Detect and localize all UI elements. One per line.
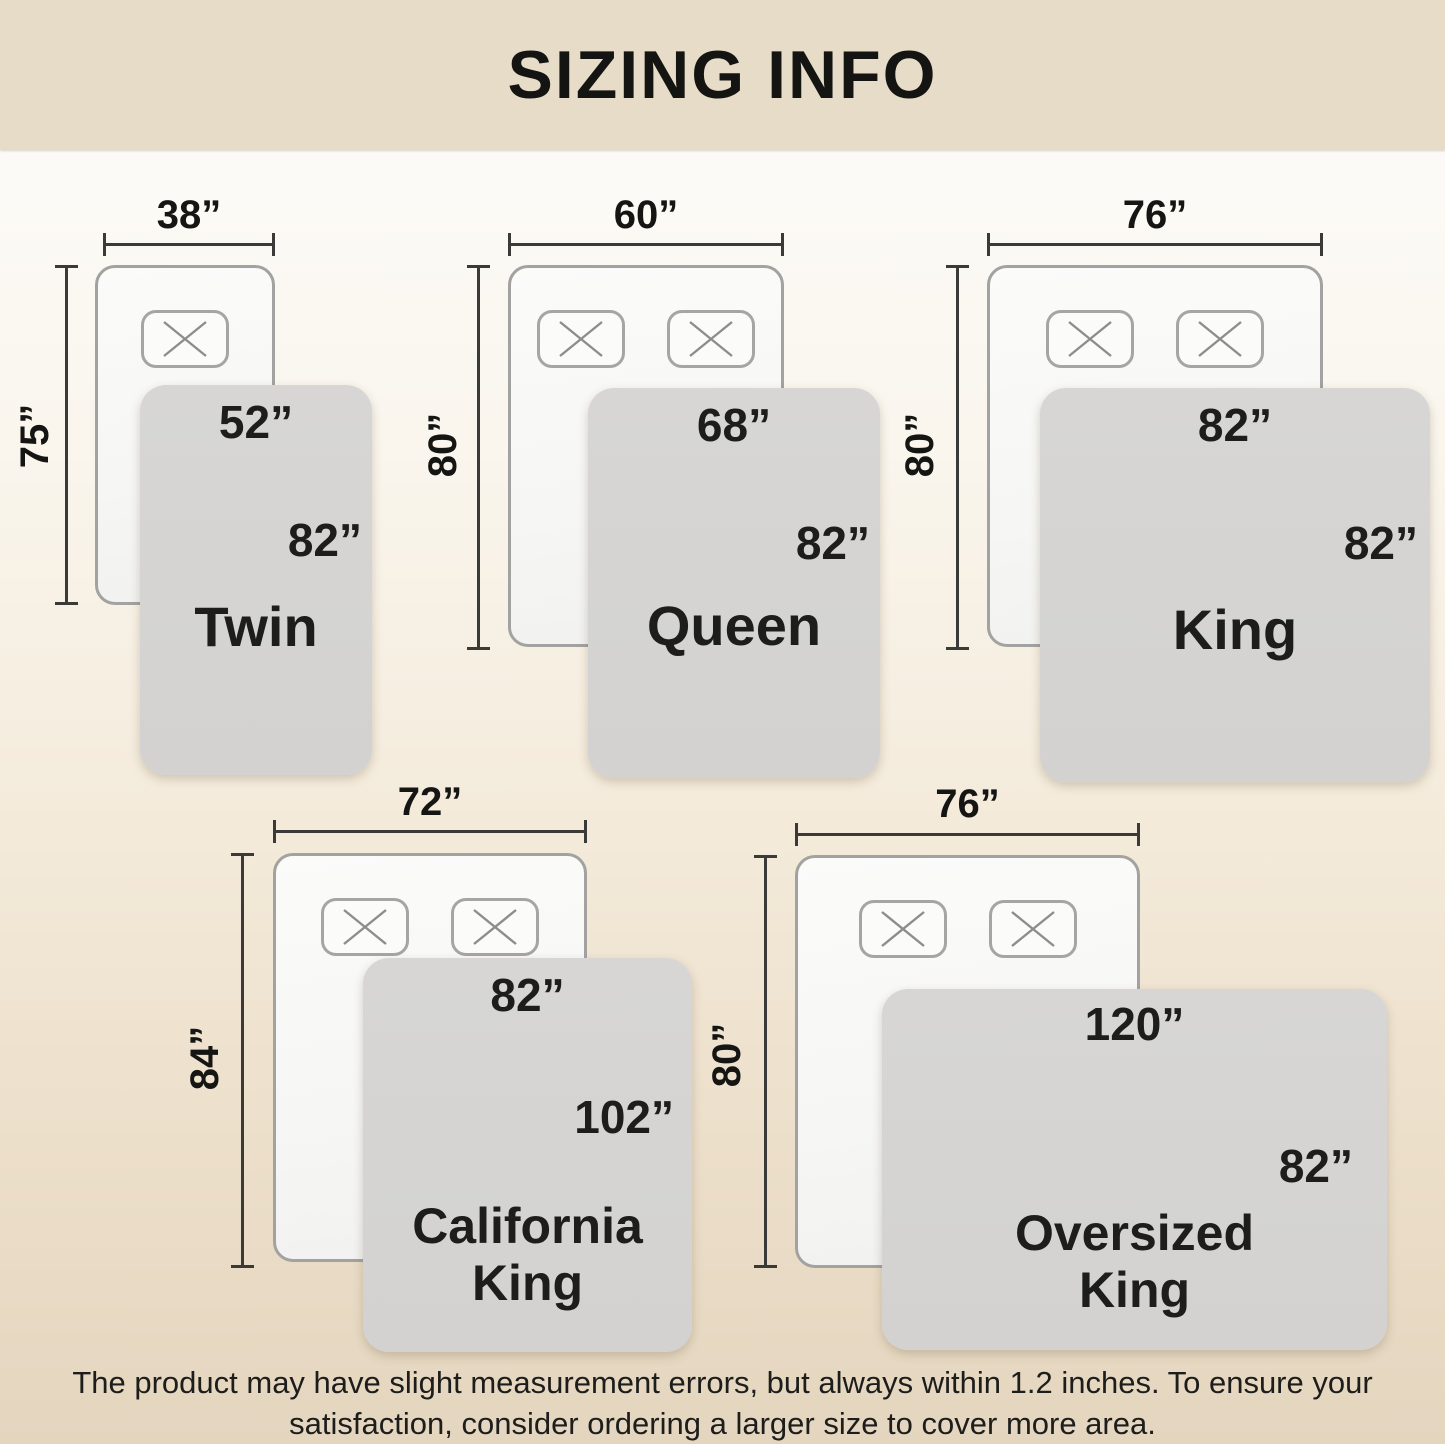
x-icon (876, 908, 930, 950)
pillow-icon (859, 900, 947, 958)
disclaimer-line-2: satisfaction, consider ordering a larger… (0, 1403, 1445, 1444)
oversized-king-blanket-length-label: 82” (1279, 1139, 1353, 1193)
pillow-icon (989, 900, 1077, 958)
x-icon (1006, 908, 1060, 950)
oversized-king-mattress-length-label: 80” (705, 1010, 749, 1100)
oversized-king-mattress-width-label: 76” (795, 782, 1140, 827)
disclaimer-text: The product may have slight measurement … (0, 1362, 1445, 1444)
diagram-oversized-king: 76” 80” 120” 82” Oversized King (0, 0, 1445, 1444)
sizing-infographic: SIZING INFO 38” 75” 52” 82” Twin 60” 80” (0, 0, 1445, 1444)
oversized-king-blanket: 120” 82” Oversized King (882, 989, 1387, 1350)
oversized-king-width-dimension-line (795, 833, 1140, 836)
oversized-king-blanket-name: Oversized King (955, 1205, 1315, 1319)
oversized-king-length-dimension-line (764, 855, 767, 1268)
disclaimer-line-1: The product may have slight measurement … (0, 1362, 1445, 1403)
oversized-king-blanket-width-label: 120” (882, 997, 1387, 1051)
